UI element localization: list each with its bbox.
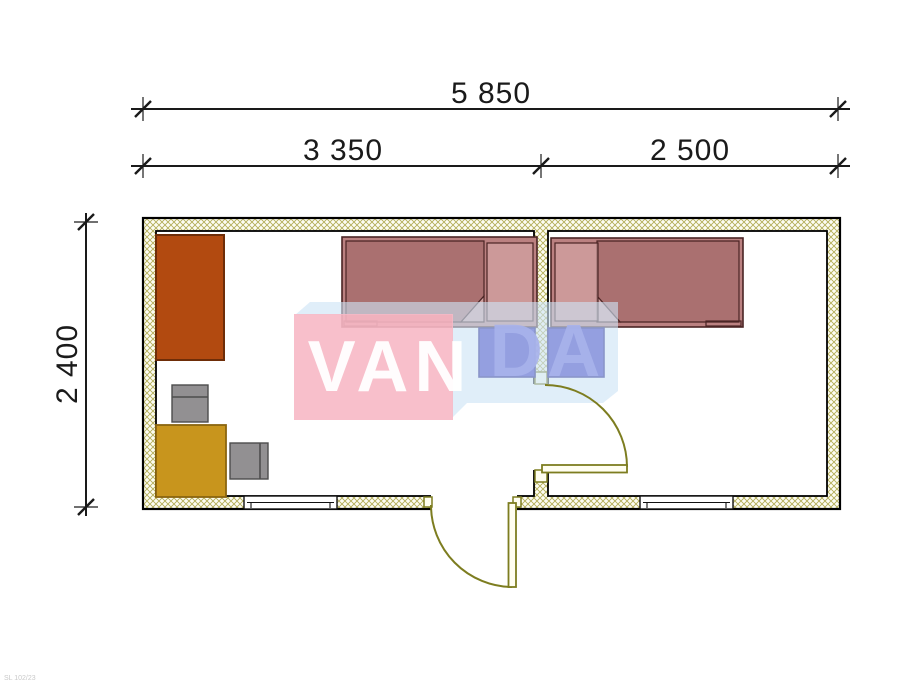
table bbox=[156, 425, 226, 497]
door-leaf bbox=[542, 465, 627, 473]
blanket bbox=[597, 241, 739, 322]
dim-label-overall-width: 5 850 bbox=[451, 77, 531, 110]
wardrobe bbox=[156, 235, 224, 360]
door-leaf bbox=[509, 503, 517, 587]
watermark-text-da: DA bbox=[490, 309, 605, 392]
floor-plan-canvas: VAN DA 5 850 bbox=[0, 0, 924, 700]
dim-label-depth: 2 400 bbox=[51, 324, 84, 404]
dim-overall-depth: 2 400 bbox=[51, 213, 98, 516]
watermark-text-van: VAN bbox=[308, 327, 473, 407]
dim-overall-width: 5 850 bbox=[131, 77, 850, 121]
entrance-door bbox=[431, 503, 516, 587]
window-left bbox=[244, 496, 337, 509]
entrance-door-opening bbox=[431, 493, 517, 512]
corner-mark: SL 102/23 bbox=[4, 675, 36, 682]
dim-room-widths: 3 350 2 500 bbox=[131, 134, 850, 178]
dim-label-left-room: 3 350 bbox=[303, 134, 383, 167]
window-right bbox=[640, 496, 733, 509]
vanda-watermark: VAN DA bbox=[294, 302, 618, 420]
chair bbox=[230, 443, 268, 479]
door-swing-arc bbox=[431, 505, 512, 587]
floor-plan-drawing: VAN DA 5 850 bbox=[0, 0, 924, 700]
desk-chair bbox=[172, 385, 208, 422]
dim-label-right-room: 2 500 bbox=[650, 134, 730, 167]
